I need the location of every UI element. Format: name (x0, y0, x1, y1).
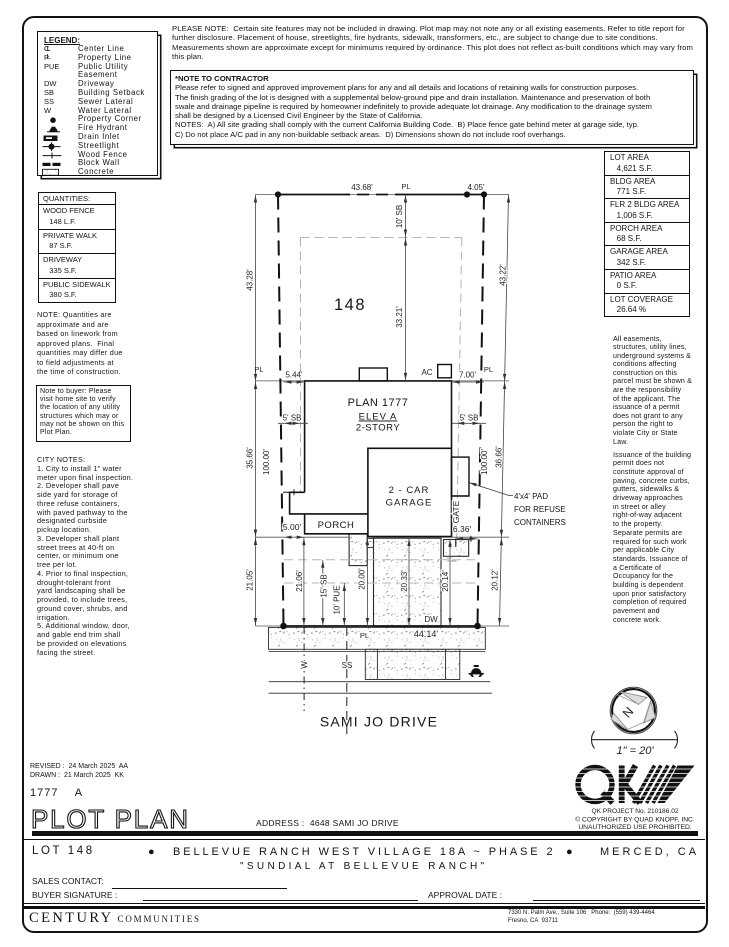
svg-text:PORCH: PORCH (318, 520, 355, 531)
svg-text:2 - CAR: 2 - CAR (389, 485, 430, 496)
svg-text:44.14': 44.14' (414, 629, 439, 639)
svg-text:AC: AC (421, 368, 432, 377)
svg-text:33.21': 33.21' (395, 306, 404, 328)
svg-text:PL: PL (484, 365, 493, 374)
svg-text:36.66': 36.66' (495, 446, 504, 468)
svg-text:43.28': 43.28' (246, 269, 255, 291)
svg-text:15' SB: 15' SB (320, 574, 329, 597)
svg-text:PL: PL (401, 182, 410, 191)
svg-text:7.00': 7.00' (459, 371, 477, 380)
svg-text:© COPYRIGHT BY QUAD KNOPF, INC: © COPYRIGHT BY QUAD KNOPF, INC. (575, 816, 695, 824)
svg-text:UNAUTHORIZED USE PROHIBITED.: UNAUTHORIZED USE PROHIBITED. (578, 824, 691, 831)
svg-text:DW: DW (424, 615, 438, 624)
svg-text:GARAGE: GARAGE (386, 498, 433, 509)
svg-text:100.00': 100.00' (262, 449, 271, 475)
svg-text:4.05': 4.05' (467, 183, 485, 192)
svg-text:10' PUE: 10' PUE (333, 585, 342, 614)
svg-text:GATE: GATE (451, 500, 461, 523)
svg-text:PL: PL (360, 631, 369, 640)
svg-text:21.05': 21.05' (246, 569, 255, 591)
svg-text:5' SB: 5' SB (283, 414, 302, 423)
svg-text:20.00': 20.00' (358, 568, 367, 590)
svg-text:QK PROJECT No. 210186.02: QK PROJECT No. 210186.02 (591, 808, 678, 815)
svg-text:10' SB: 10' SB (395, 205, 404, 228)
svg-text:CONTAINERS: CONTAINERS (514, 518, 566, 527)
svg-text:20.12': 20.12' (491, 569, 500, 591)
svg-text:ELEV A: ELEV A (359, 412, 398, 423)
svg-text:20.33': 20.33' (400, 570, 409, 592)
svg-text:W: W (300, 661, 309, 669)
svg-text:43.68': 43.68' (351, 183, 373, 192)
svg-text:5' SB: 5' SB (460, 414, 479, 423)
svg-text:6.36': 6.36' (453, 524, 472, 534)
svg-text:35.66': 35.66' (246, 447, 255, 469)
svg-text:PL: PL (254, 365, 263, 374)
svg-text:148: 148 (334, 296, 366, 314)
svg-text:1" = 20': 1" = 20' (617, 745, 655, 757)
svg-text:SS: SS (342, 661, 353, 670)
svg-text:20.14': 20.14' (441, 570, 450, 592)
svg-text:5.00': 5.00' (283, 522, 302, 532)
svg-text:2-STORY: 2-STORY (356, 423, 400, 434)
svg-text:100.00': 100.00' (480, 449, 489, 475)
svg-text:43.22': 43.22' (499, 264, 508, 286)
svg-text:FOR REFUSE: FOR REFUSE (514, 505, 566, 514)
svg-text:4'x4' PAD: 4'x4' PAD (514, 492, 548, 501)
svg-text:PLAN 1777: PLAN 1777 (348, 397, 409, 409)
svg-text:21.06': 21.06' (295, 570, 304, 592)
svg-text:SAMI JO DRIVE: SAMI JO DRIVE (320, 714, 438, 730)
svg-text:5.44': 5.44' (285, 371, 303, 380)
